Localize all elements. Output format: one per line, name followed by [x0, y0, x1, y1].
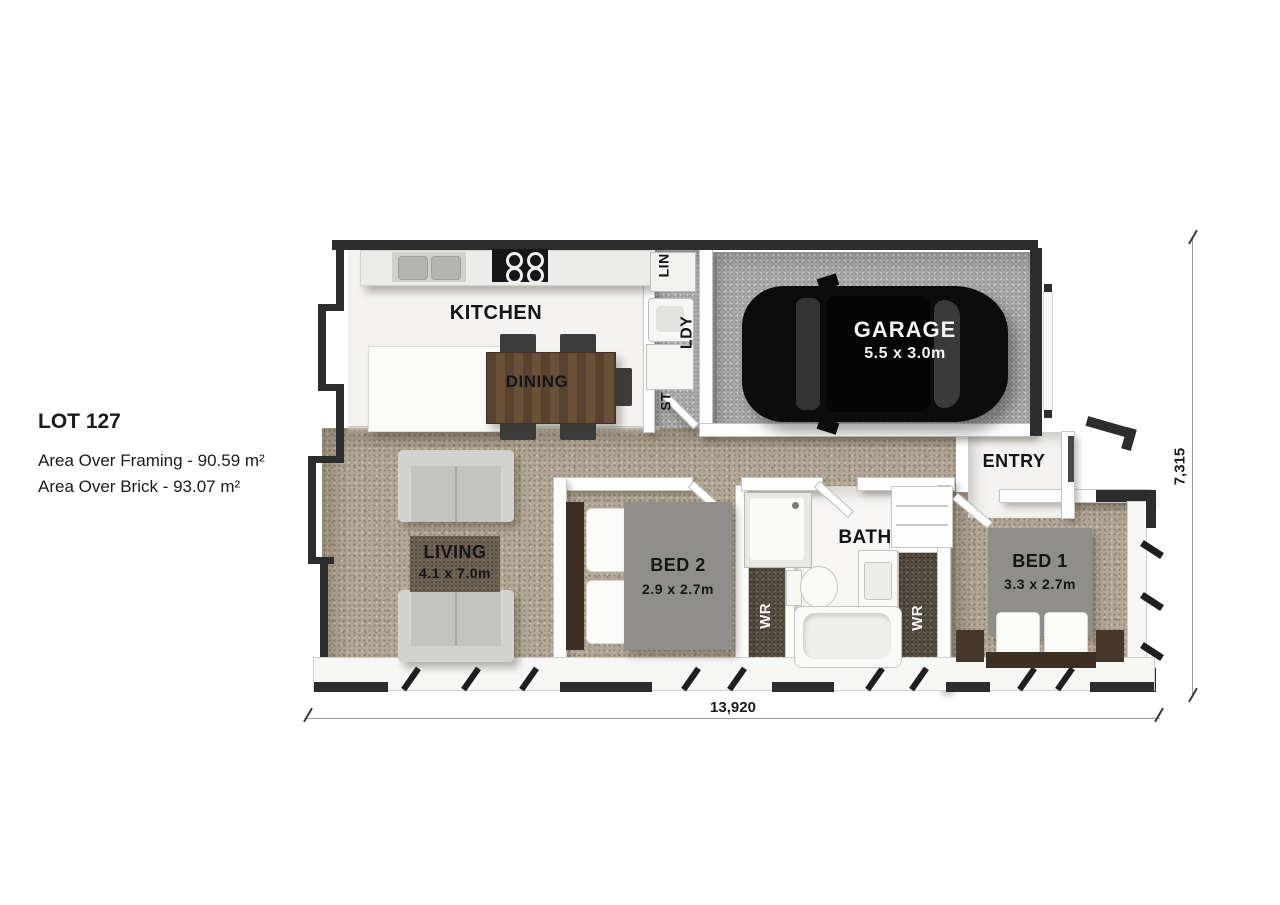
sofa-top-arm-right	[501, 450, 514, 522]
bed2-label: BED 2	[628, 556, 728, 575]
living-dims: 4.1 x 7.0m	[413, 566, 497, 581]
south-wall-seg-4	[946, 682, 990, 692]
sink-basin-right	[431, 256, 461, 280]
floor-plan-page: LOT 127 Area Over Framing - 90.59 m² Are…	[0, 0, 1280, 905]
wall-garage-south	[700, 424, 1034, 436]
front-door	[1068, 436, 1074, 482]
toilet-bowl	[800, 566, 838, 608]
entry-floor	[968, 432, 1074, 518]
bed1-label: BED 1	[992, 552, 1088, 571]
bed2-headboard	[566, 502, 584, 650]
bed2-dims: 2.9 x 2.7m	[628, 582, 728, 597]
wall-hall-garage	[700, 250, 712, 434]
closet-shelf-line-2	[896, 524, 948, 526]
sofa-bottom-arm-right	[501, 590, 514, 662]
wall-bed2-west	[554, 478, 566, 668]
dimension-tick-bottom-left	[303, 708, 313, 723]
sofa-top-back	[398, 450, 514, 466]
sofa-top-arm-left	[398, 450, 411, 522]
exterior-wall-west-5	[320, 557, 328, 669]
wall-bath-north-left	[742, 478, 822, 490]
laundry-label: LDY	[680, 308, 697, 356]
sofa-bottom-arm-left	[398, 590, 411, 662]
south-wall-seg-1	[314, 682, 388, 692]
dimension-line-bottom	[307, 718, 1160, 719]
bed1-pillow-1	[996, 612, 1040, 656]
wardrobe-left-label: WR	[758, 596, 774, 636]
sofa-top-cushion-split	[455, 466, 457, 522]
area-over-framing: Area Over Framing - 90.59 m²	[38, 451, 265, 471]
dimension-line-right	[1192, 238, 1193, 696]
garage-door-cap-bottom	[1044, 410, 1052, 418]
bed1-headboard	[986, 652, 1096, 668]
area-over-brick: Area Over Brick - 93.07 m²	[38, 477, 240, 497]
sofa-top	[398, 450, 514, 522]
sofa-bottom-cushion-split	[455, 590, 457, 646]
dining-label: DINING	[492, 373, 582, 391]
lot-title: LOT 127	[38, 410, 121, 434]
entry-label: ENTRY	[974, 452, 1054, 471]
bed2-duvet	[624, 502, 732, 650]
exterior-wall-west-3	[336, 384, 344, 462]
shower-head	[792, 502, 799, 509]
bath-label: BATH	[820, 528, 910, 548]
exterior-wall-west-1	[336, 240, 344, 310]
sink-basin-left	[398, 256, 428, 280]
garage-dims: 5.5 x 3.0m	[840, 346, 970, 363]
kitchen-label: KITCHEN	[434, 303, 558, 324]
storage-label: ST	[659, 383, 674, 419]
south-wall-seg-3	[772, 682, 834, 692]
overall-width-dimension: 13,920	[683, 699, 783, 716]
wall-bed2-north	[554, 478, 692, 490]
burner-3	[506, 267, 523, 284]
bed1-dims: 3.3 x 2.7m	[992, 577, 1088, 592]
bed1-side-table-right	[1096, 630, 1124, 662]
exterior-wall-north	[332, 240, 1038, 250]
car-rear-window	[796, 298, 820, 410]
sofa-bottom-back	[398, 646, 514, 662]
dimension-tick-right-bottom	[1188, 688, 1198, 703]
garage-label: GARAGE	[840, 318, 970, 341]
exterior-wall-east-1	[1146, 494, 1156, 528]
burner-4	[527, 267, 544, 284]
closet-shelf-line-1	[896, 505, 948, 507]
dimension-tick-bottom-right	[1154, 708, 1164, 723]
south-wall-seg-2	[560, 682, 652, 692]
exterior-wall-garage-east	[1030, 248, 1042, 436]
porch-roof-edge-1	[1085, 416, 1130, 438]
garage-door-panel	[1044, 292, 1052, 410]
exterior-wall-west-4	[308, 456, 316, 564]
wardrobe-right-label: WR	[910, 598, 926, 638]
linen-label: LIN	[657, 245, 672, 285]
sofa-bottom	[398, 590, 514, 662]
bed1-side-table-left	[956, 630, 984, 662]
overall-height-dimension: 7,315	[1172, 437, 1189, 497]
south-wall-seg-5	[1090, 682, 1154, 692]
vanity-basin	[864, 562, 892, 600]
dimension-tick-right-top	[1188, 230, 1198, 245]
bed1-pillow-2	[1044, 612, 1088, 656]
bathtub-basin	[803, 613, 891, 659]
garage-door-cap-top	[1044, 284, 1052, 292]
living-label: LIVING	[413, 543, 497, 562]
exterior-wall-west-2	[318, 304, 326, 390]
